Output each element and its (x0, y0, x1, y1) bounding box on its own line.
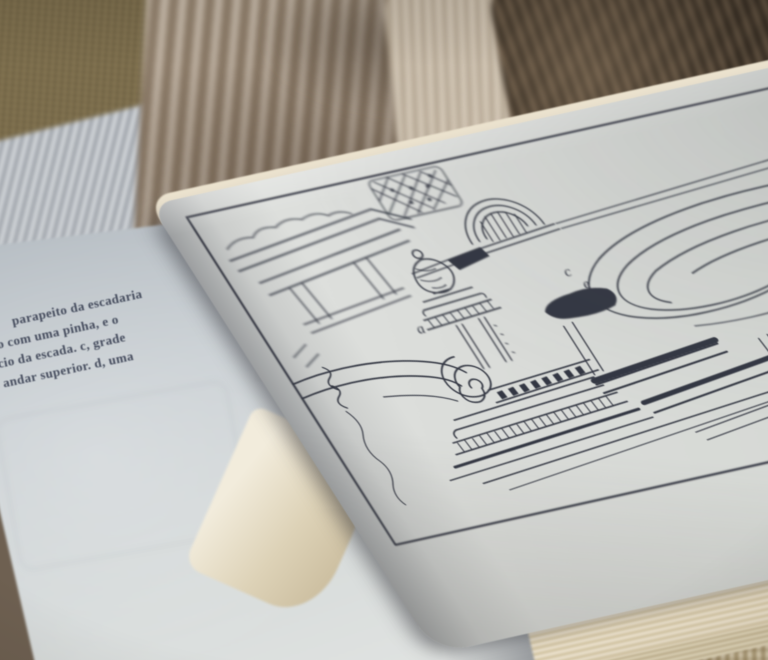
photo-open-book-scene: a c e parapeito da escadaria ão com uma … (0, 0, 768, 660)
